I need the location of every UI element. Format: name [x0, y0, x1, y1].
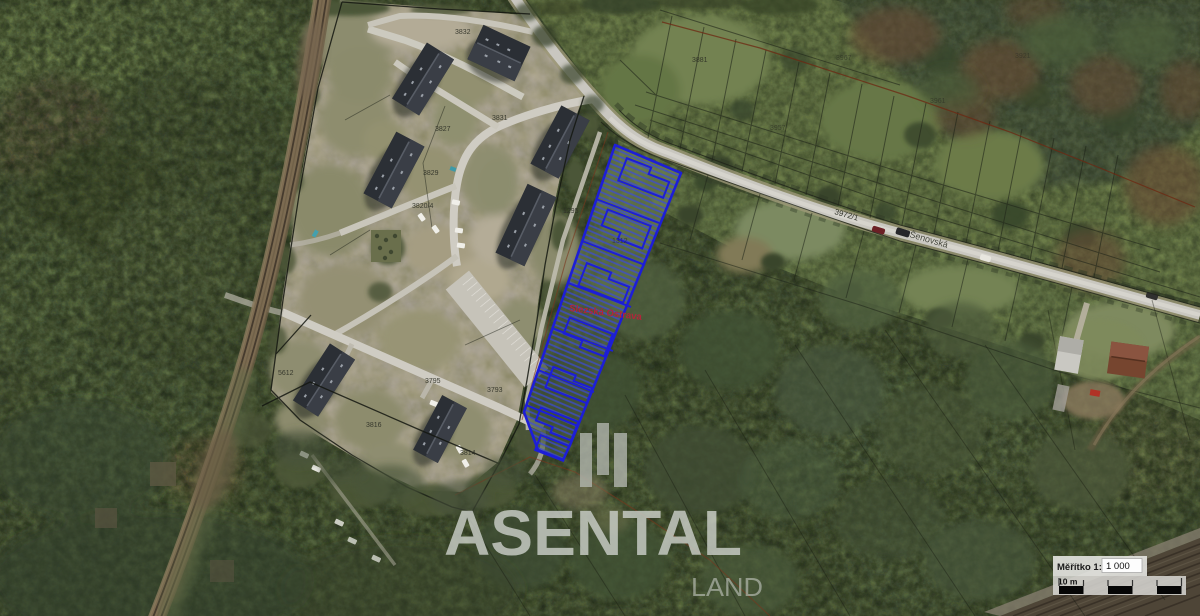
svg-text:3961: 3961	[930, 98, 946, 105]
svg-text:ASENTAL: ASENTAL	[444, 497, 742, 569]
svg-text:3793: 3793	[487, 387, 503, 394]
svg-text:3921: 3921	[1015, 53, 1031, 60]
svg-text:1295: 1295	[563, 208, 579, 215]
svg-text:3827: 3827	[435, 126, 451, 133]
svg-text:3832: 3832	[455, 29, 471, 36]
svg-text:3881: 3881	[692, 57, 708, 64]
svg-text:3820/4: 3820/4	[412, 203, 434, 210]
svg-text:3829: 3829	[423, 170, 439, 177]
svg-text:Měřítko 1:: Měřítko 1:	[1057, 562, 1102, 573]
svg-text:3816: 3816	[366, 422, 382, 429]
svg-text:3831: 3831	[492, 115, 508, 122]
svg-text:10 m: 10 m	[1058, 577, 1078, 587]
svg-text:1 000: 1 000	[1106, 561, 1130, 572]
svg-text:3795: 3795	[425, 378, 441, 385]
svg-text:3814: 3814	[460, 450, 476, 457]
svg-text:3957: 3957	[770, 125, 786, 132]
svg-text:3967: 3967	[836, 55, 852, 62]
svg-text:5612: 5612	[278, 370, 294, 377]
svg-text:1312: 1312	[612, 238, 628, 245]
svg-text:LAND: LAND	[691, 572, 763, 602]
